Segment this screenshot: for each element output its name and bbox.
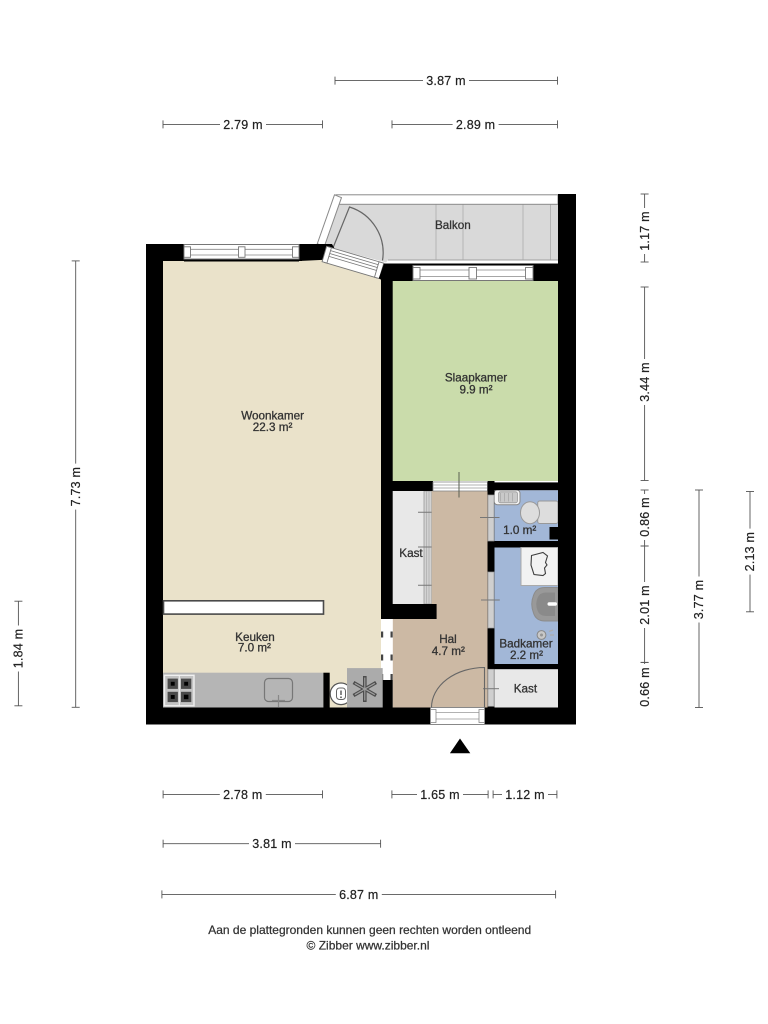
svg-text:2.89 m: 2.89 m [456,118,495,132]
svg-text:2.79 m: 2.79 m [223,118,262,132]
svg-text:1.17 m: 1.17 m [638,211,652,250]
svg-text:7.73 m: 7.73 m [69,467,83,506]
svg-text:1.84 m: 1.84 m [12,629,26,668]
svg-text:Balkon: Balkon [435,219,471,232]
svg-text:9.9 m²: 9.9 m² [459,383,492,396]
svg-text:1.65 m: 1.65 m [420,788,459,802]
svg-text:0.86 m: 0.86 m [638,497,652,536]
svg-text:Kast: Kast [514,683,538,696]
svg-text:3.87 m: 3.87 m [426,74,465,88]
svg-text:6.87 m: 6.87 m [339,888,378,902]
svg-text:3.81 m: 3.81 m [252,837,291,851]
svg-text:2.2 m²: 2.2 m² [510,649,543,662]
svg-text:4.7 m²: 4.7 m² [432,645,465,658]
svg-text:© Zibber www.zibber.nl: © Zibber www.zibber.nl [307,939,430,953]
svg-text:2.78 m: 2.78 m [223,788,262,802]
svg-text:1.12 m: 1.12 m [505,788,544,802]
svg-text:3.44 m: 3.44 m [638,362,652,401]
svg-text:Aan de plattegronden kunnen ge: Aan de plattegronden kunnen geen rechten… [208,923,531,937]
svg-text:22.3 m²: 22.3 m² [253,421,293,434]
svg-text:Kast: Kast [399,547,423,560]
svg-text:0.66 m: 0.66 m [638,667,652,706]
svg-text:2.01 m: 2.01 m [638,585,652,624]
svg-text:7.0 m²: 7.0 m² [238,642,271,655]
svg-text:3.77 m: 3.77 m [692,580,706,619]
svg-text:2.13 m: 2.13 m [743,532,757,571]
svg-text:1.0 m²: 1.0 m² [503,524,536,537]
